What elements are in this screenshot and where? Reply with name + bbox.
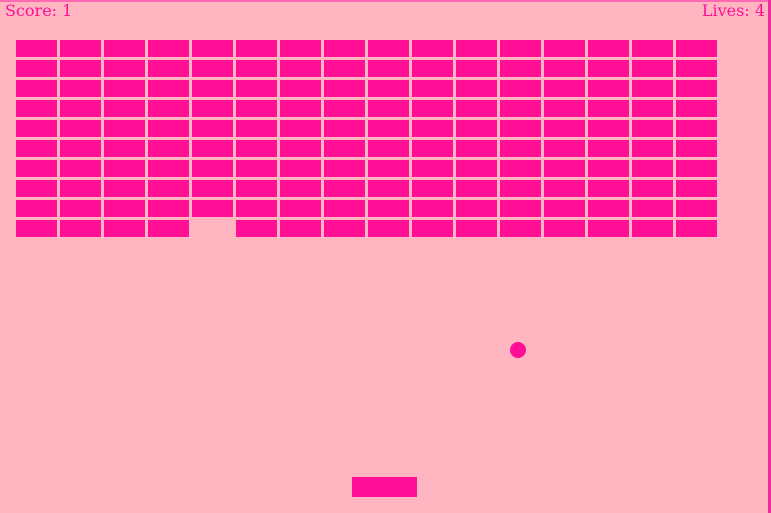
brick <box>104 140 145 157</box>
brick <box>324 120 365 137</box>
brick <box>632 200 673 217</box>
brick <box>588 100 629 117</box>
brick <box>632 180 673 197</box>
brick <box>280 120 321 137</box>
brick <box>412 120 453 137</box>
brick <box>280 60 321 77</box>
brick <box>412 40 453 57</box>
brick <box>500 160 541 177</box>
brick <box>588 80 629 97</box>
brick <box>16 100 57 117</box>
brick <box>60 220 101 237</box>
brick <box>588 120 629 137</box>
brick <box>16 60 57 77</box>
brick <box>544 160 585 177</box>
brick <box>632 140 673 157</box>
brick <box>544 220 585 237</box>
brick <box>368 60 409 77</box>
brick <box>412 140 453 157</box>
brick <box>324 160 365 177</box>
brick <box>192 60 233 77</box>
brick <box>280 140 321 157</box>
brick <box>60 100 101 117</box>
brick <box>148 200 189 217</box>
brick <box>588 60 629 77</box>
brick <box>60 120 101 137</box>
brick <box>412 100 453 117</box>
brick <box>632 60 673 77</box>
brick <box>16 80 57 97</box>
brick <box>16 40 57 57</box>
brick <box>104 160 145 177</box>
brick <box>368 100 409 117</box>
brick <box>544 200 585 217</box>
brick <box>588 140 629 157</box>
brick <box>368 40 409 57</box>
brick <box>192 100 233 117</box>
ball <box>510 342 526 358</box>
brick <box>280 200 321 217</box>
brick <box>104 60 145 77</box>
brick <box>368 140 409 157</box>
brick <box>588 200 629 217</box>
brick <box>192 160 233 177</box>
brick <box>236 40 277 57</box>
brick <box>236 220 277 237</box>
brick <box>148 100 189 117</box>
brick <box>148 220 189 237</box>
brick <box>148 120 189 137</box>
brick <box>192 180 233 197</box>
brick <box>236 120 277 137</box>
brick <box>192 80 233 97</box>
brick <box>60 60 101 77</box>
brick <box>676 140 717 157</box>
brick <box>148 140 189 157</box>
brick <box>324 60 365 77</box>
brick <box>500 100 541 117</box>
brick <box>148 60 189 77</box>
brick <box>60 80 101 97</box>
top-border-line <box>0 0 771 2</box>
brick <box>60 180 101 197</box>
brick <box>412 200 453 217</box>
brick <box>500 200 541 217</box>
brick <box>544 180 585 197</box>
brick <box>280 180 321 197</box>
brick <box>280 220 321 237</box>
brick <box>456 140 497 157</box>
brick <box>676 220 717 237</box>
brick <box>16 120 57 137</box>
brick <box>60 40 101 57</box>
brick <box>588 40 629 57</box>
brick <box>192 120 233 137</box>
brick <box>632 100 673 117</box>
brick <box>148 80 189 97</box>
brick <box>676 180 717 197</box>
brick <box>368 200 409 217</box>
brick <box>500 180 541 197</box>
brick <box>456 160 497 177</box>
brick <box>544 100 585 117</box>
brick <box>324 220 365 237</box>
brick <box>500 120 541 137</box>
brick <box>236 140 277 157</box>
brick <box>676 80 717 97</box>
brick <box>588 180 629 197</box>
brick <box>104 180 145 197</box>
brick <box>412 220 453 237</box>
paddle[interactable] <box>352 477 417 497</box>
brick <box>456 60 497 77</box>
brick <box>544 80 585 97</box>
brick <box>676 160 717 177</box>
brick <box>500 80 541 97</box>
brick <box>544 120 585 137</box>
brick <box>280 160 321 177</box>
brick <box>324 200 365 217</box>
brick <box>632 220 673 237</box>
brick <box>192 40 233 57</box>
brick <box>456 120 497 137</box>
brick <box>632 160 673 177</box>
brick <box>412 80 453 97</box>
brick <box>368 160 409 177</box>
brick <box>236 100 277 117</box>
brick <box>544 40 585 57</box>
brick <box>544 60 585 77</box>
brick <box>456 100 497 117</box>
brick <box>676 40 717 57</box>
brick <box>500 140 541 157</box>
brick <box>324 100 365 117</box>
brick <box>60 200 101 217</box>
brick <box>632 120 673 137</box>
brick <box>60 160 101 177</box>
brick <box>456 220 497 237</box>
brick <box>60 140 101 157</box>
brick <box>192 140 233 157</box>
brick <box>456 80 497 97</box>
brick <box>324 40 365 57</box>
brick <box>236 180 277 197</box>
brick <box>676 100 717 117</box>
brick <box>676 200 717 217</box>
brick <box>588 160 629 177</box>
brick <box>412 160 453 177</box>
brick <box>324 80 365 97</box>
brick <box>148 40 189 57</box>
brick <box>16 180 57 197</box>
brick <box>280 40 321 57</box>
brick <box>588 220 629 237</box>
brick <box>236 200 277 217</box>
brick <box>676 120 717 137</box>
brick <box>368 80 409 97</box>
brick <box>368 120 409 137</box>
brick <box>500 220 541 237</box>
game-screen[interactable]: Score: 1 Lives: 4 <box>0 0 771 513</box>
brick <box>148 180 189 197</box>
brick <box>280 80 321 97</box>
brick <box>676 60 717 77</box>
brick <box>368 220 409 237</box>
brick <box>500 40 541 57</box>
score-display: Score: 1 <box>5 1 72 21</box>
brick <box>16 220 57 237</box>
brick <box>148 160 189 177</box>
brick <box>632 80 673 97</box>
brick <box>500 60 541 77</box>
brick <box>104 200 145 217</box>
brick <box>280 100 321 117</box>
brick <box>412 60 453 77</box>
brick <box>192 200 233 217</box>
brick <box>104 40 145 57</box>
brick <box>104 220 145 237</box>
brick <box>368 180 409 197</box>
brick <box>16 200 57 217</box>
brick <box>324 140 365 157</box>
brick <box>456 40 497 57</box>
brick <box>16 140 57 157</box>
brick <box>236 60 277 77</box>
brick <box>412 180 453 197</box>
brick <box>104 80 145 97</box>
brick <box>456 200 497 217</box>
brick <box>104 100 145 117</box>
brick <box>104 120 145 137</box>
brick <box>236 160 277 177</box>
brick <box>236 80 277 97</box>
lives-display: Lives: 4 <box>702 1 765 21</box>
brick <box>324 180 365 197</box>
brick <box>16 160 57 177</box>
brick <box>632 40 673 57</box>
brick <box>456 180 497 197</box>
brick <box>544 140 585 157</box>
